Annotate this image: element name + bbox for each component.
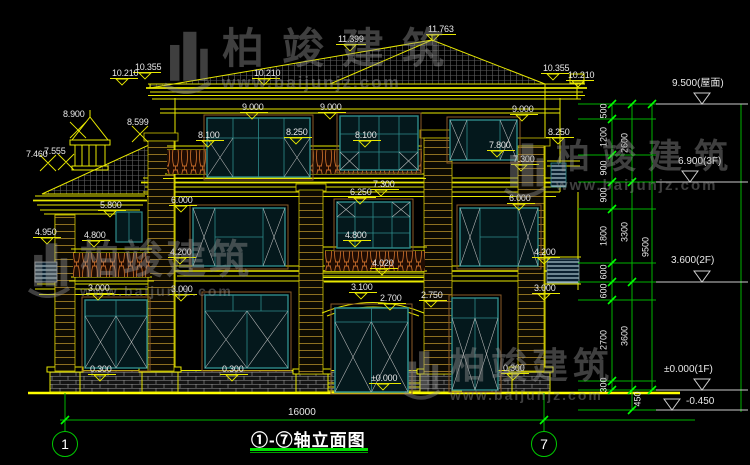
dim-inner: 600 bbox=[600, 264, 609, 279]
spot-elevation-label: 7.555 bbox=[44, 147, 66, 156]
spot-elevation-label: 8.250 bbox=[548, 128, 570, 137]
spot-elevation-label: 8.100 bbox=[355, 131, 377, 140]
spot-elevation-label: 7.300 bbox=[373, 180, 395, 189]
axis-bubble-1: 1 bbox=[52, 431, 78, 457]
spot-elevation-label: 0.300 bbox=[222, 365, 244, 374]
dim-middle: 3600 bbox=[621, 326, 630, 346]
spot-elevation-label: 4.200 bbox=[170, 248, 192, 257]
spot-elevation-label: 2.750 bbox=[421, 291, 443, 300]
level-label-3f: 6.900(3F) bbox=[678, 157, 721, 167]
spot-elevation-label: 8.900 bbox=[63, 110, 85, 119]
spot-elevation-label: 4.020 bbox=[372, 259, 394, 268]
spot-elevation-label: 0.300 bbox=[90, 365, 112, 374]
spot-elevation-label: 9.000 bbox=[320, 103, 342, 112]
spot-elevation-label: 8.100 bbox=[198, 131, 220, 140]
spot-elevation-label: 4.800 bbox=[84, 231, 106, 240]
spot-elevation-label: 7.300 bbox=[513, 155, 535, 164]
spot-elevation-label: 8.599 bbox=[127, 118, 149, 127]
dim-middle: 450 bbox=[634, 391, 643, 406]
spot-elevation-label: 9.000 bbox=[512, 105, 534, 114]
dim-inner: 300 bbox=[600, 377, 609, 392]
spot-elevation-label: 8.250 bbox=[286, 128, 308, 137]
dim-inner: 900 bbox=[600, 187, 609, 202]
spot-elevation-label: ±0.000 bbox=[371, 374, 397, 383]
title-underline-thin bbox=[250, 452, 368, 453]
level-label-2f: 3.600(2F) bbox=[671, 256, 714, 266]
spot-elevation-label: 4.800 bbox=[345, 231, 367, 240]
spot-elevation-label: 6.250 bbox=[350, 188, 372, 197]
overall-width-dim: 16000 bbox=[288, 407, 316, 418]
level-label-minus: -0.450 bbox=[686, 397, 714, 407]
dim-inner: 600 bbox=[600, 283, 609, 298]
spot-elevation-label: 5.800 bbox=[100, 201, 122, 210]
spot-elevation-label: 6.000 bbox=[509, 194, 531, 203]
dim-inner: 500 bbox=[600, 103, 609, 118]
title-underline bbox=[250, 448, 368, 451]
spot-elevation-label: 10.210 bbox=[568, 71, 594, 80]
main-roof bbox=[146, 34, 587, 113]
spot-elevation-label: 4.950 bbox=[35, 228, 57, 237]
dim-inner: 2700 bbox=[600, 330, 609, 350]
spot-elevation-label: 3.000 bbox=[534, 284, 556, 293]
spot-elevation-label: 10.355 bbox=[135, 63, 161, 72]
spot-elevation-label: 7.800 bbox=[489, 141, 511, 150]
spot-elevation-label: 6.000 bbox=[171, 196, 193, 205]
dim-inner: 900 bbox=[600, 160, 609, 175]
spot-elevation-label: 11.399 bbox=[338, 35, 364, 44]
spot-elevation-label: 11.763 bbox=[428, 25, 454, 34]
spot-elevation-label: 10.355 bbox=[543, 64, 569, 73]
spot-elevation-label: 10.210 bbox=[254, 69, 280, 78]
dim-inner: 1800 bbox=[600, 226, 609, 246]
spot-elevation-label: 3.100 bbox=[351, 283, 373, 292]
axis-bubble-7: 7 bbox=[531, 431, 557, 457]
cad-elevation-screenshot: 11.399 11.763 10.210 10.355 10.210 10.35… bbox=[0, 0, 750, 465]
dim-overall: 9500 bbox=[642, 237, 651, 257]
spot-elevation-label: 2.700 bbox=[380, 294, 402, 303]
dim-inner: 1200 bbox=[600, 127, 609, 147]
spot-elevation-label: 0.300 bbox=[503, 364, 525, 373]
turret bbox=[70, 110, 110, 170]
spot-elevation-label: 3.000 bbox=[88, 284, 110, 293]
level-symbols bbox=[656, 93, 748, 410]
spot-elevation-label: 3.000 bbox=[171, 285, 193, 294]
level-label-1f: ±0.000(1F) bbox=[664, 365, 713, 375]
level-label-roof: 9.500(屋面) bbox=[672, 79, 724, 89]
spot-elevation-label: 9.000 bbox=[242, 103, 264, 112]
dim-middle: 2600 bbox=[621, 133, 630, 153]
dim-middle: 3300 bbox=[621, 222, 630, 242]
spot-elevation-label: 4.200 bbox=[534, 248, 556, 257]
